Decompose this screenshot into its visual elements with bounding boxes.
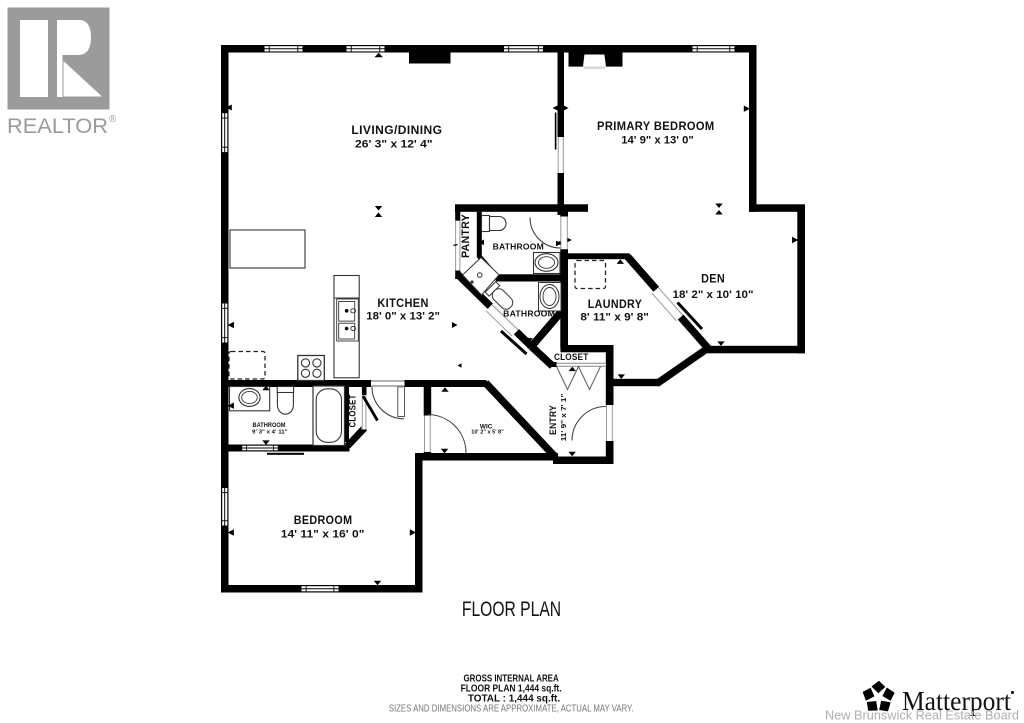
- svg-text:26' 3" x 12' 4": 26' 3" x 12' 4": [355, 139, 433, 151]
- svg-text:BATHROOM: BATHROOM: [253, 423, 286, 429]
- svg-text:14' 9" x 13' 0": 14' 9" x 13' 0": [621, 135, 694, 147]
- svg-text:11' 9" x 7' 1": 11' 9" x 7' 1": [559, 393, 568, 441]
- svg-text:BEDROOM: BEDROOM: [294, 515, 353, 527]
- svg-text:8' 11" x 9' 8": 8' 11" x 9' 8": [580, 312, 649, 324]
- svg-text:SIZES AND DIMENSIONS ARE APPRO: SIZES AND DIMENSIONS ARE APPROXIMATE, AC…: [389, 704, 634, 715]
- svg-text:DEN: DEN: [701, 274, 725, 286]
- svg-text:®: ®: [109, 114, 117, 125]
- svg-text:ENTRY: ENTRY: [548, 405, 559, 435]
- svg-text:LIVING/DINING: LIVING/DINING: [351, 125, 442, 137]
- svg-text:KITCHEN: KITCHEN: [377, 298, 429, 310]
- svg-text:18' 0" x 13' 2": 18' 0" x 13' 2": [366, 311, 440, 323]
- svg-text:BATHROOM: BATHROOM: [503, 309, 555, 319]
- svg-text:CLOSET: CLOSET: [554, 352, 589, 363]
- svg-text:18' 2" x 10' 10": 18' 2" x 10' 10": [673, 289, 754, 301]
- svg-text:BATHROOM: BATHROOM: [493, 242, 544, 252]
- svg-text:PANTRY: PANTRY: [460, 214, 472, 258]
- svg-text:PRIMARY BEDROOM: PRIMARY BEDROOM: [597, 121, 715, 133]
- svg-text:FLOOR PLAN: FLOOR PLAN: [462, 598, 561, 621]
- svg-text:New Brunswick Real Estate Boar: New Brunswick Real Estate Board: [825, 708, 1019, 723]
- svg-text:LAUNDRY: LAUNDRY: [588, 299, 643, 311]
- svg-text:CLOSET: CLOSET: [348, 394, 358, 427]
- svg-text:10' 2" x 5' 8": 10' 2" x 5' 8": [471, 430, 504, 436]
- svg-text:14' 11" x 16' 0": 14' 11" x 16' 0": [281, 529, 365, 541]
- svg-text:REALTOR: REALTOR: [7, 115, 108, 138]
- svg-text:9' 3" x 4' 11": 9' 3" x 4' 11": [252, 429, 288, 435]
